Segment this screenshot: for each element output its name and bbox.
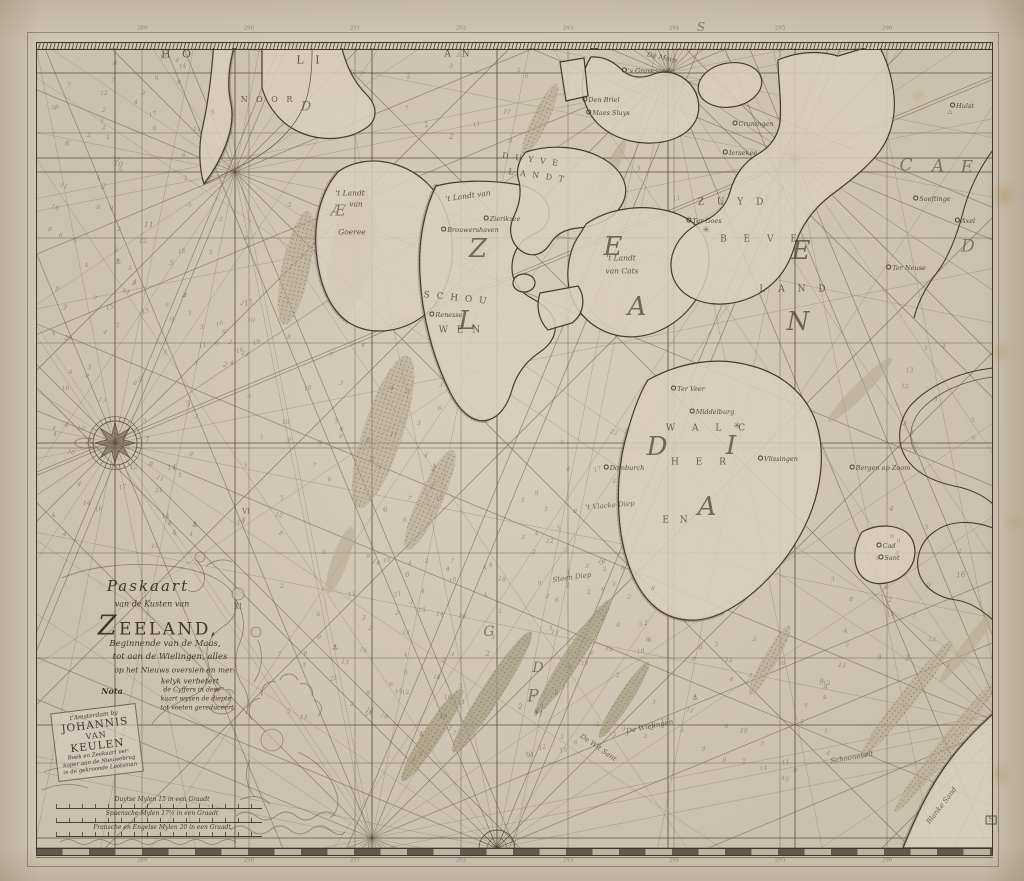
neatline-bottom-outer [36, 857, 993, 858]
neatline-top [36, 42, 993, 50]
neatline-right [992, 42, 993, 854]
neatline-bottom [36, 848, 993, 856]
neatline-left [36, 42, 37, 854]
plate-mark [27, 32, 999, 867]
antique-sea-chart: 5333467617548533751262125999213413741967… [0, 0, 1024, 881]
